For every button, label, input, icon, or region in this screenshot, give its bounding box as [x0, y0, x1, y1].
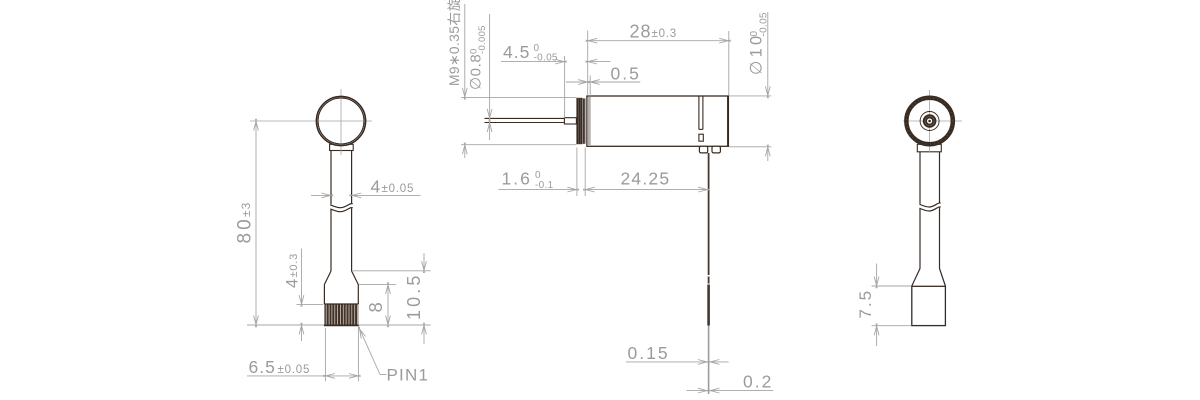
svg-text:28: 28 [630, 22, 652, 42]
svg-text:-0.05: -0.05 [758, 12, 769, 36]
svg-text:0.15: 0.15 [628, 343, 670, 363]
svg-text:M9∗0.35右旋: M9∗0.35右旋 [447, 0, 462, 86]
svg-text:6.5: 6.5 [249, 357, 276, 377]
svg-text:4: 4 [283, 279, 301, 288]
svg-text:±0.3: ±0.3 [652, 28, 678, 40]
svg-text:±0.05: ±0.05 [278, 364, 311, 376]
svg-text:∅0.8: ∅0.8 [468, 54, 485, 90]
svg-text:8: 8 [365, 302, 386, 312]
svg-text:-0.05: -0.05 [534, 52, 558, 63]
svg-text:1.6: 1.6 [502, 169, 532, 189]
svg-text:24.25: 24.25 [621, 169, 671, 189]
svg-text:4: 4 [371, 176, 381, 196]
svg-text:-0.005: -0.005 [477, 25, 488, 54]
svg-text:4.5: 4.5 [503, 42, 530, 62]
svg-text:0.5: 0.5 [611, 63, 641, 83]
svg-text:80: 80 [234, 216, 255, 243]
svg-text:PIN1: PIN1 [387, 366, 430, 385]
svg-text:∅10: ∅10 [748, 33, 766, 75]
svg-text:-0.1: -0.1 [535, 180, 554, 191]
svg-text:0.2: 0.2 [743, 372, 773, 392]
svg-text:±0.3: ±0.3 [288, 253, 300, 278]
svg-text:±0.05: ±0.05 [382, 183, 415, 195]
svg-text:±3: ±3 [239, 202, 253, 217]
svg-text:10.5: 10.5 [404, 273, 424, 320]
svg-text:7.5: 7.5 [856, 289, 875, 319]
